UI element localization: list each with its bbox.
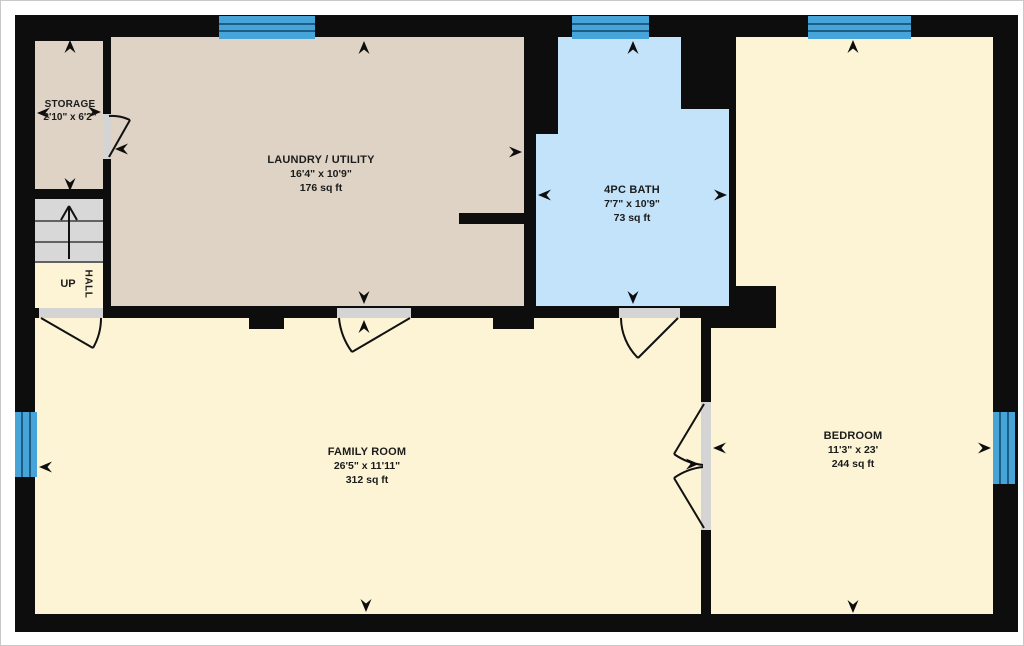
window-bedroom-north (808, 16, 911, 39)
wall-stub-laundry (459, 213, 524, 224)
room-laundry (111, 37, 524, 306)
stairs-up-label: UP (60, 278, 75, 290)
wall-pillar-right (493, 318, 534, 329)
door-jamb-storage (103, 114, 111, 159)
floor-plan-svg (1, 1, 1023, 645)
floor-plan-canvas: STORAGE 2'10" x 6'2" LAUNDRY / UTILITY 1… (0, 0, 1024, 646)
window-bath-north (572, 16, 649, 39)
door-jamb-laundry (337, 308, 411, 318)
door-jamb-bath (619, 308, 680, 318)
window-family-west (15, 412, 37, 477)
window-laundry-north (219, 16, 315, 39)
wall-pillar-left (249, 318, 284, 329)
door-jamb-hall (39, 308, 103, 318)
window-bedroom-east (993, 412, 1015, 484)
door-jamb-double (701, 402, 711, 530)
hall-label: HALL (83, 270, 94, 299)
room-family (35, 318, 701, 614)
